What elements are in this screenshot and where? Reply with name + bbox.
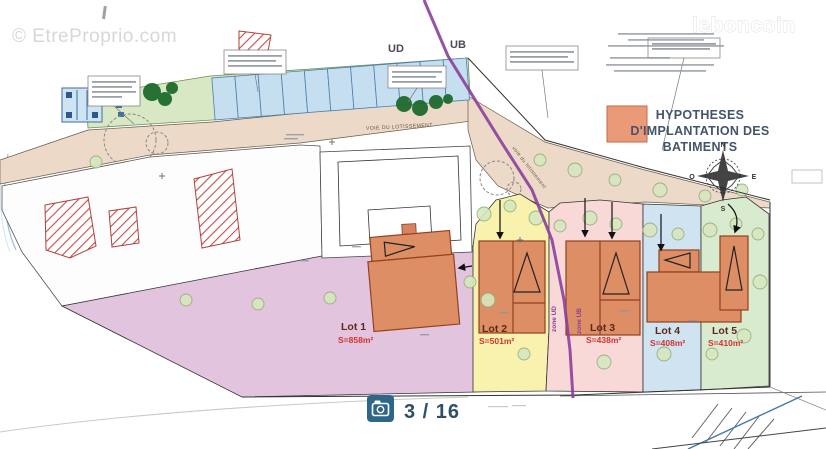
lot-1-name: Lot 1 bbox=[341, 321, 366, 333]
lot-3-surface: S=438m² bbox=[586, 335, 621, 345]
photo-counter: 3 / 16 bbox=[404, 401, 460, 423]
lot-5-name: Lot 5 bbox=[712, 325, 737, 337]
camera-icon bbox=[367, 395, 394, 422]
lot-5-surface: S=410m² bbox=[708, 338, 743, 348]
site-plan-drawing: UD UB zone UD zone UB VOIE DU LOTISSEMEN… bbox=[0, 0, 826, 449]
listing-photo-site-plan: UD UB zone UD zone UB VOIE DU LOTISSEMEN… bbox=[0, 0, 826, 449]
compass-west: O bbox=[689, 174, 695, 181]
etreproprio-watermark: © EtreProprio.com bbox=[12, 26, 177, 47]
zone-ud-label: UD bbox=[388, 43, 404, 55]
lot-3-name: Lot 3 bbox=[590, 322, 615, 334]
compass-north: N bbox=[720, 142, 725, 149]
zone-ub-vertical-label: zone UB bbox=[576, 308, 583, 334]
lot-2-surface: S=501m² bbox=[479, 336, 514, 346]
leboncoin-logo: leboncoin bbox=[692, 14, 796, 37]
lot-1-surface: S=858m² bbox=[338, 335, 373, 345]
building-lot-2 bbox=[479, 241, 545, 333]
lot-4-surface: S=408m² bbox=[650, 338, 685, 348]
legend-line-1: HYPOTHESES bbox=[656, 108, 744, 122]
compass-south: S bbox=[721, 206, 726, 213]
legend-line-2: D'IMPLANTATION DES bbox=[630, 124, 769, 138]
building-lot-1 bbox=[366, 230, 460, 331]
compass-east: E bbox=[752, 174, 757, 181]
zone-ud-vertical-label: zone UD bbox=[551, 306, 558, 332]
zone-ub-label: UB bbox=[450, 39, 466, 51]
lot-4-name: Lot 4 bbox=[655, 325, 680, 337]
legend-line-3: BATIMENTS bbox=[663, 140, 738, 154]
lot-2-name: Lot 2 bbox=[482, 323, 507, 335]
